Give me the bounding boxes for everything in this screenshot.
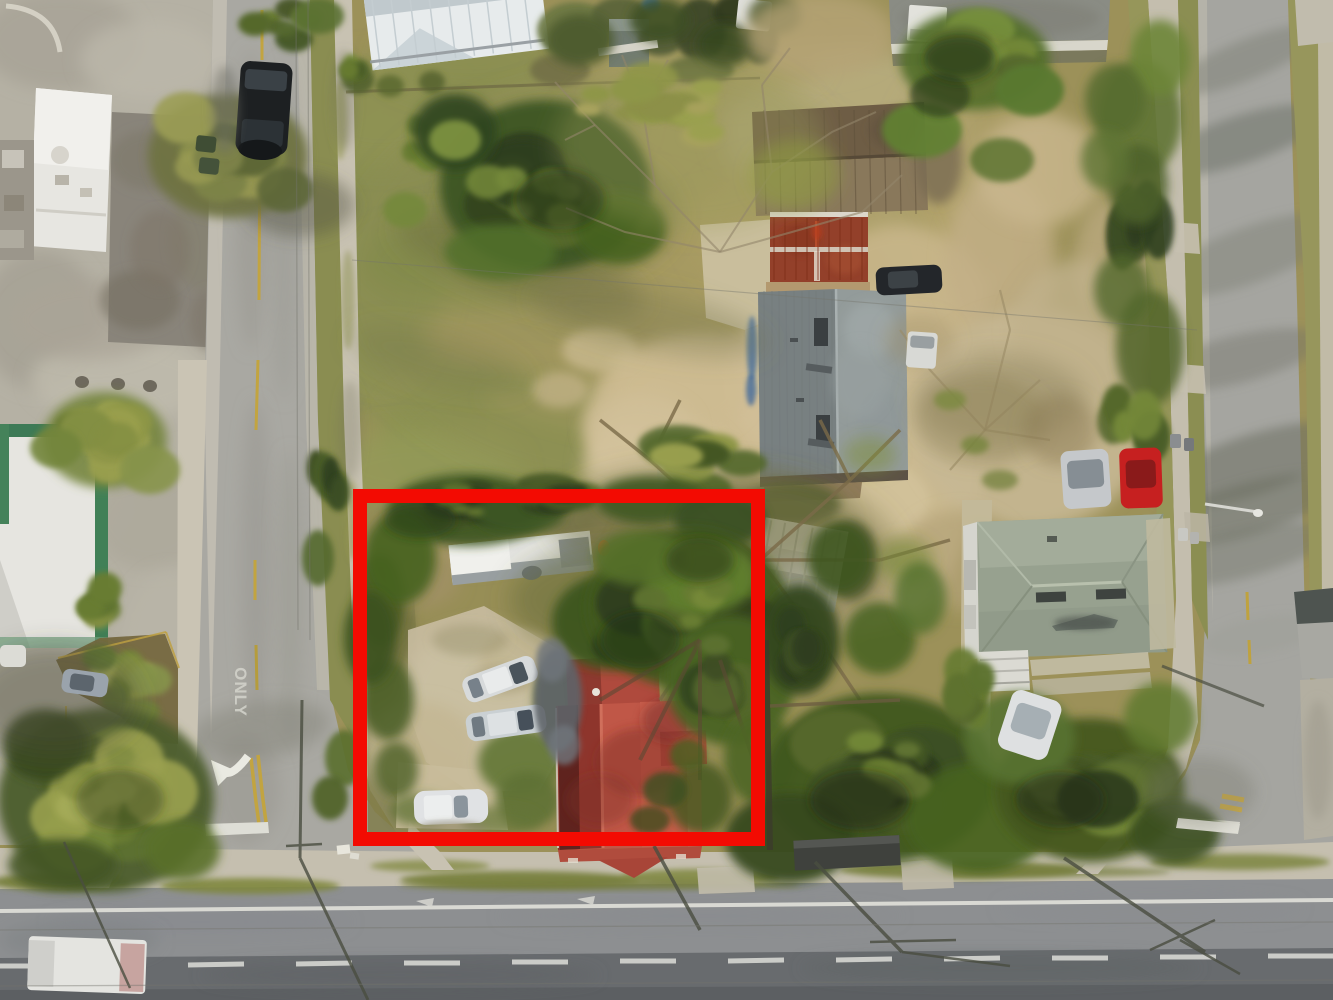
svg-text:ONLY: ONLY <box>231 667 250 717</box>
